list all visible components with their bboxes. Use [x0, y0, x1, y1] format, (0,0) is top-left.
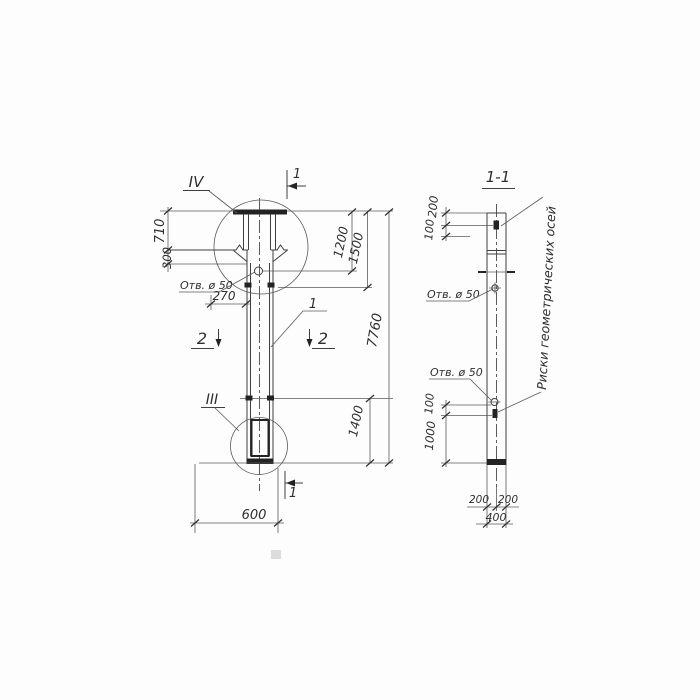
axes-note-text: Риски геометрических осей — [534, 206, 559, 390]
section-hole-callout-upper: Отв. ø 50 — [426, 288, 493, 301]
front-lower-risk-left — [246, 396, 253, 401]
axes-note-callout: Риски геометрических осей — [498, 197, 559, 412]
section-hole-upper-cross — [489, 283, 501, 294]
section-hole-label-lower: Отв. ø 50 — [430, 366, 483, 379]
detail-circle-bottom — [231, 418, 288, 475]
front-notch-right — [271, 245, 288, 262]
section-top-extensions — [441, 213, 493, 237]
front-bottom-plug — [252, 420, 269, 456]
front-lower-risk-right — [267, 396, 274, 401]
front-flange-plate — [233, 210, 287, 215]
dim-200-left: 200 — [469, 494, 489, 506]
section-mark-2-right: 2 — [307, 329, 336, 349]
front-width-dimension: 600 — [190, 464, 284, 533]
section-arrow-down — [307, 339, 313, 347]
front-left-dimensions: 710 300 — [153, 207, 174, 272]
section-mark-1-top-label: 1 — [293, 167, 301, 182]
section-bottom-dimensions: 100 1000 — [422, 393, 492, 467]
section-arrow-left — [288, 183, 297, 190]
axes-note-leader-top — [501, 197, 543, 226]
section-axis-risk-bottom — [493, 409, 498, 418]
section-mark-2-left: 2 — [191, 329, 222, 349]
dim-100-top: 100 — [422, 219, 437, 241]
section-hole-label-upper: Отв. ø 50 — [427, 288, 480, 301]
front-hole — [255, 267, 263, 275]
dim-600: 600 — [242, 508, 267, 523]
section-hole-leader-lower — [429, 379, 492, 401]
front-notch-left — [167, 245, 248, 262]
section-view: 1-1 200 100 — [422, 168, 559, 528]
dim-1400: 1400 — [345, 404, 366, 438]
section-title: 1-1 — [486, 168, 511, 186]
section-mark-2-right-label: 2 — [318, 329, 328, 348]
part-label-1-text: 1 — [309, 297, 317, 312]
dim-200-top: 200 — [425, 195, 441, 218]
section-hole-callout-lower: Отв. ø 50 — [429, 366, 492, 401]
section-axis-risk-top — [494, 221, 500, 230]
dim-400: 400 — [486, 511, 507, 524]
scan-artifact — [271, 550, 281, 559]
front-right-dimensions: 1200 1500 7760 1400 — [330, 209, 393, 467]
blueprint-page: 710 300 Отв. ø 50 270 1200 — [0, 0, 700, 700]
detail-marker-III-leader — [215, 408, 239, 431]
dim-1000: 1000 — [422, 420, 438, 450]
section-top-dimensions: 200 100 — [422, 195, 493, 241]
dim-100-bottom: 100 — [422, 393, 437, 415]
detail-marker-IV-label: IV — [189, 173, 205, 191]
front-risk-mark-left — [245, 283, 252, 288]
section-mark-2-left-label: 2 — [197, 329, 207, 348]
detail-marker-III-label: III — [206, 392, 218, 408]
dim-710: 710 — [153, 219, 168, 244]
dim-300: 300 — [160, 247, 174, 269]
section-mark-1-top: 1 — [287, 167, 306, 199]
section-mark-1-bottom-label: 1 — [289, 486, 297, 501]
front-risk-mark-right — [268, 283, 275, 288]
front-view: 710 300 Отв. ø 50 270 1200 — [153, 167, 393, 533]
detail-marker-III: III — [201, 392, 239, 431]
axes-note-leader-bottom — [498, 392, 541, 412]
section-arrow-down — [216, 339, 222, 347]
dim-270: 270 — [213, 289, 236, 303]
section-width-dimensions: 200 200 400 — [467, 465, 519, 528]
technical-drawing: 710 300 Отв. ø 50 270 1200 — [0, 0, 700, 700]
dim-200-right: 200 — [498, 494, 518, 506]
detail-marker-IV: IV — [183, 173, 237, 213]
section-mark-1-bottom: 1 — [285, 471, 303, 501]
detail-marker-IV-leader — [209, 191, 237, 213]
dim-7760: 7760 — [364, 312, 386, 349]
section-bottom-end — [487, 459, 506, 465]
